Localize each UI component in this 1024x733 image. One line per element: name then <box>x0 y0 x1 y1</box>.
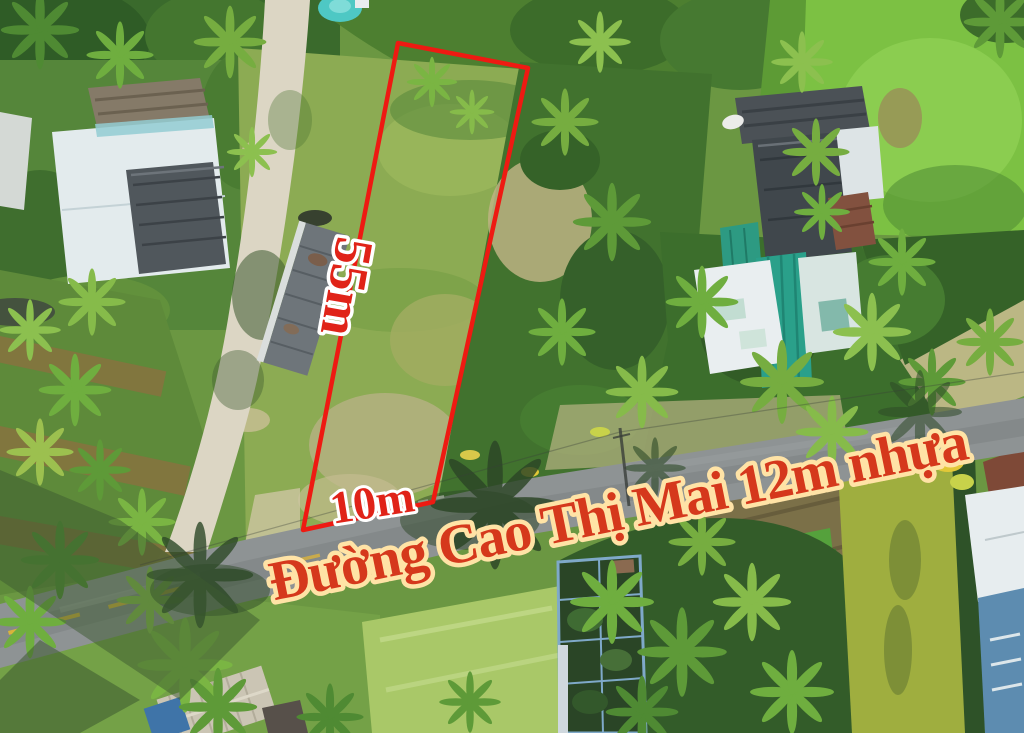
aerial-photo: 55m 10m Đường Cao Thị Mai 12m nhựa <box>0 0 1024 733</box>
aerial-photo-canvas: 55m 10m Đường Cao Thị Mai 12m nhựa <box>0 0 1024 733</box>
